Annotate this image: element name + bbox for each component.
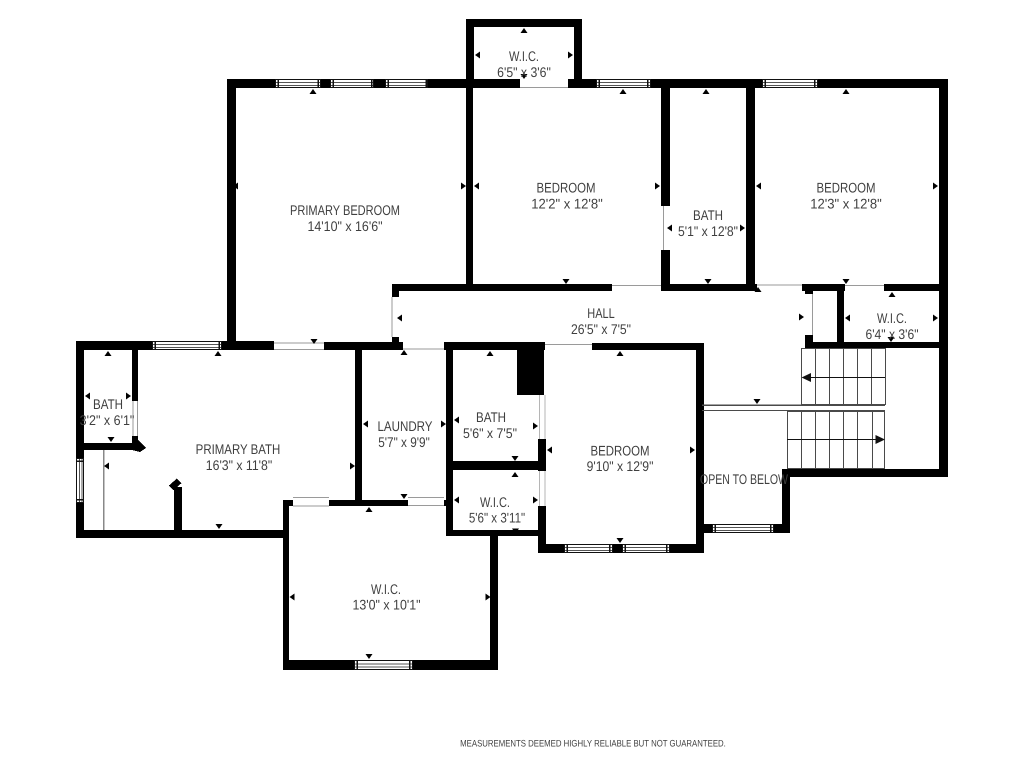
svg-text:5'6" x 3'11": 5'6" x 3'11" (469, 510, 525, 526)
svg-text:BATH: BATH (93, 396, 123, 412)
svg-text:26'5" x 7'5": 26'5" x 7'5" (571, 321, 631, 337)
svg-text:9'10" x 12'9": 9'10" x 12'9" (587, 458, 654, 474)
svg-text:6'4" x 3'6": 6'4" x 3'6" (865, 326, 918, 342)
svg-text:5'1" x 12'8": 5'1" x 12'8" (678, 223, 738, 239)
svg-text:BEDROOM: BEDROOM (590, 443, 649, 459)
svg-text:BATH: BATH (476, 409, 506, 425)
svg-text:W.I.C.: W.I.C. (371, 581, 401, 597)
svg-text:OPEN TO BELOW: OPEN TO BELOW (700, 471, 789, 487)
svg-text:5'7" x 9'9": 5'7" x 9'9" (378, 434, 430, 450)
svg-text:16'3" x 11'8": 16'3" x 11'8" (206, 457, 272, 473)
svg-text:14'10" x 16'6": 14'10" x 16'6" (307, 218, 382, 234)
svg-text:LAUNDRY: LAUNDRY (378, 418, 434, 434)
svg-text:W.I.C.: W.I.C. (877, 310, 907, 326)
svg-text:3'2" x 6'1": 3'2" x 6'1" (80, 412, 135, 428)
svg-text:13'0" x 10'1": 13'0" x 10'1" (352, 597, 420, 613)
svg-text:BEDROOM: BEDROOM (536, 180, 595, 196)
svg-text:PRIMARY BATH: PRIMARY BATH (196, 441, 281, 457)
svg-text:12'2" x 12'8": 12'2" x 12'8" (531, 196, 603, 212)
svg-text:12'3" x 12'8": 12'3" x 12'8" (810, 196, 882, 212)
svg-text:W.I.C.: W.I.C. (509, 48, 539, 64)
svg-text:MEASUREMENTS DEEMED HIGHLY REL: MEASUREMENTS DEEMED HIGHLY RELIABLE BUT … (460, 739, 726, 750)
svg-text:HALL: HALL (587, 305, 615, 321)
svg-text:BEDROOM: BEDROOM (816, 180, 875, 196)
svg-text:5'6" x 7'5": 5'6" x 7'5" (463, 425, 517, 441)
svg-text:6'5" x 3'6": 6'5" x 3'6" (497, 64, 551, 80)
svg-text:W.I.C.: W.I.C. (480, 494, 510, 510)
svg-text:BATH: BATH (693, 207, 723, 223)
svg-text:PRIMARY BEDROOM: PRIMARY BEDROOM (290, 202, 400, 218)
